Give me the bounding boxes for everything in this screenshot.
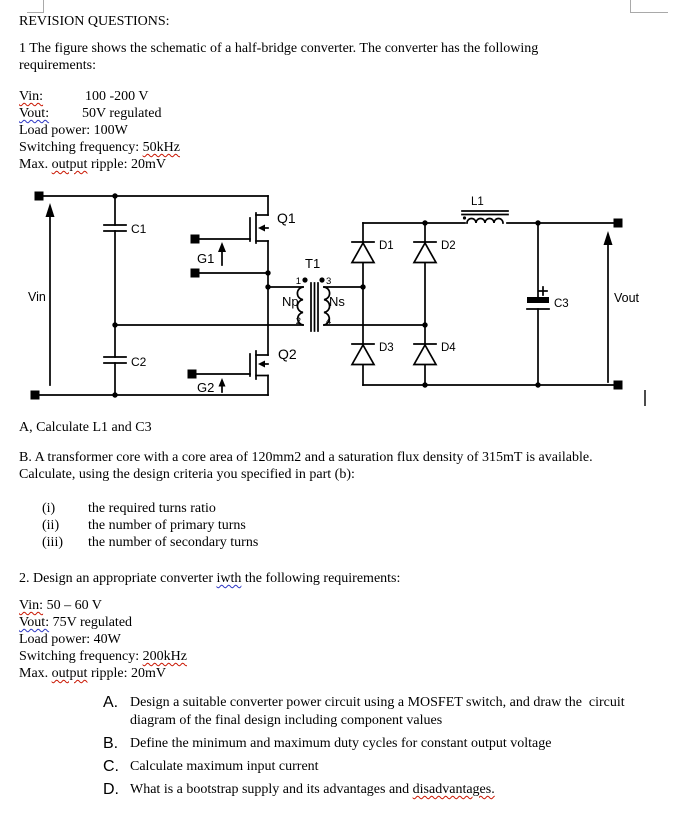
capacitor-c2	[104, 357, 126, 363]
spec-vin-label: Vin:	[19, 89, 43, 104]
spec2-vin: Vin: 50 – 60 V	[19, 597, 187, 614]
pin2-label: 2	[296, 316, 301, 327]
d3-label: D3	[379, 342, 394, 354]
vin-label: Vin	[28, 290, 46, 304]
spec-vout: Vout:50V regulated	[19, 105, 180, 122]
g2-label: G2	[197, 380, 214, 395]
diode-d4	[414, 344, 436, 365]
ns-label: Ns	[329, 294, 345, 309]
question1-line1: 1 The figure shows the schematic of a ha…	[19, 40, 659, 57]
q2-body-arrow	[258, 361, 265, 368]
c1-label: C1	[131, 222, 147, 236]
spec2-load-power: Load power: 40W	[19, 631, 187, 648]
spec-vin: Vin:100 -200 V	[19, 88, 180, 105]
capacitor-c1	[104, 225, 126, 231]
list-item-a: A. Design a suitable converter power cir…	[103, 694, 663, 730]
output-terminal-bottom	[614, 381, 623, 390]
spec2-vout: Vout: 75V regulated	[19, 614, 187, 631]
input-terminal-bottom	[31, 391, 40, 400]
q2-label: Q2	[278, 346, 297, 362]
pin4-label: 4	[326, 316, 331, 327]
dot-secondary	[319, 277, 324, 282]
typo-word: iwth	[216, 571, 241, 586]
l1-polarity-dot	[463, 216, 466, 219]
d4-label: D4	[441, 342, 456, 354]
part-b-paragraph: B. A transformer core with a core area o…	[19, 449, 669, 483]
g1-label: G1	[197, 251, 214, 266]
spec-load-power: Load power: 100W	[19, 122, 180, 139]
vout-arrowhead	[604, 231, 613, 245]
list-item: (i)the required turns ratio	[19, 500, 258, 517]
inductor-l1	[462, 211, 508, 223]
margin-corner-mark-left	[27, 0, 44, 13]
list-item-c: C. Calculate maximum input current	[103, 758, 663, 776]
spec-vin-value: 100 -200 V	[85, 89, 149, 104]
t1-label: T1	[305, 256, 320, 271]
document-page: REVISION QUESTIONS: 1 The figure shows t…	[0, 0, 683, 820]
c3-top-plate	[527, 297, 549, 303]
part-b-line2: Calculate, using the design criteria you…	[19, 466, 669, 483]
l1-label: L1	[471, 196, 484, 208]
spec-switching-frequency: Switching frequency: 50kHz	[19, 139, 180, 156]
question1-line2: requirements:	[19, 57, 659, 74]
spec-block-2: Vin: 50 – 60 V Vout: 75V regulated Load …	[19, 597, 187, 682]
list-item-d: D. What is a bootstrap supply and its ad…	[103, 781, 663, 799]
q1-label: Q1	[277, 210, 296, 226]
spec-block-1: Vin:100 -200 V Vout:50V regulated Load p…	[19, 88, 180, 173]
g1-return-terminal	[191, 269, 200, 278]
part-b-line1: B. A transformer core with a core area o…	[19, 449, 669, 466]
pin1-label: 1	[296, 276, 301, 287]
margin-corner-mark-right	[630, 0, 668, 13]
output-terminal-top	[614, 219, 623, 228]
c2-label: C2	[131, 355, 147, 369]
spec-max-ripple: Max. output ripple: 20mV	[19, 156, 180, 173]
diode-d2	[414, 242, 436, 263]
letter-list: A. Design a suitable converter power cir…	[103, 694, 663, 804]
input-terminal-top	[35, 192, 44, 201]
page-title: REVISION QUESTIONS:	[19, 13, 170, 30]
diode-d1	[352, 242, 374, 263]
g1-terminal	[191, 235, 200, 244]
vin-arrowhead	[46, 203, 55, 217]
roman-list: (i)the required turns ratio (ii)the numb…	[19, 500, 258, 551]
list-item: (iii)the number of secondary turns	[19, 534, 258, 551]
question2-intro: 2. Design an appropriate converter iwth …	[19, 570, 400, 587]
mosfet-q2	[192, 287, 268, 395]
q1-body-arrow	[258, 225, 265, 232]
pin3-label: 3	[326, 276, 331, 287]
question1-intro: 1 The figure shows the schematic of a ha…	[19, 40, 659, 74]
capacitor-c3	[527, 223, 549, 385]
list-item: (ii)the number of primary turns	[19, 517, 258, 534]
spec2-switching-frequency: Switching frequency: 200kHz	[19, 648, 187, 665]
np-label: Np	[282, 294, 299, 309]
spec-vout-value: 50V regulated	[82, 106, 161, 121]
g1-arrowhead	[218, 242, 226, 252]
spec-vout-label: Vout:	[19, 106, 49, 121]
vout-label: Vout	[614, 291, 640, 305]
list-item-b: B. Define the minimum and maximum duty c…	[103, 735, 663, 753]
dot-primary	[302, 277, 307, 282]
g2-terminal	[188, 370, 197, 379]
mosfet-q1	[195, 196, 268, 287]
spec2-max-ripple: Max. output ripple: 20mV	[19, 665, 187, 682]
d1-label: D1	[379, 240, 394, 252]
d2-label: D2	[441, 240, 456, 252]
diode-d3	[352, 344, 374, 365]
c3-label: C3	[554, 298, 569, 310]
part-a-heading: A, Calculate L1 and C3	[19, 419, 152, 436]
g2-arrowhead	[219, 378, 226, 387]
half-bridge-converter-schematic: Vin C1 C2 Q1 G1 Q2 G2 T1 1 3 2 4 Np Ns D…	[25, 185, 683, 410]
